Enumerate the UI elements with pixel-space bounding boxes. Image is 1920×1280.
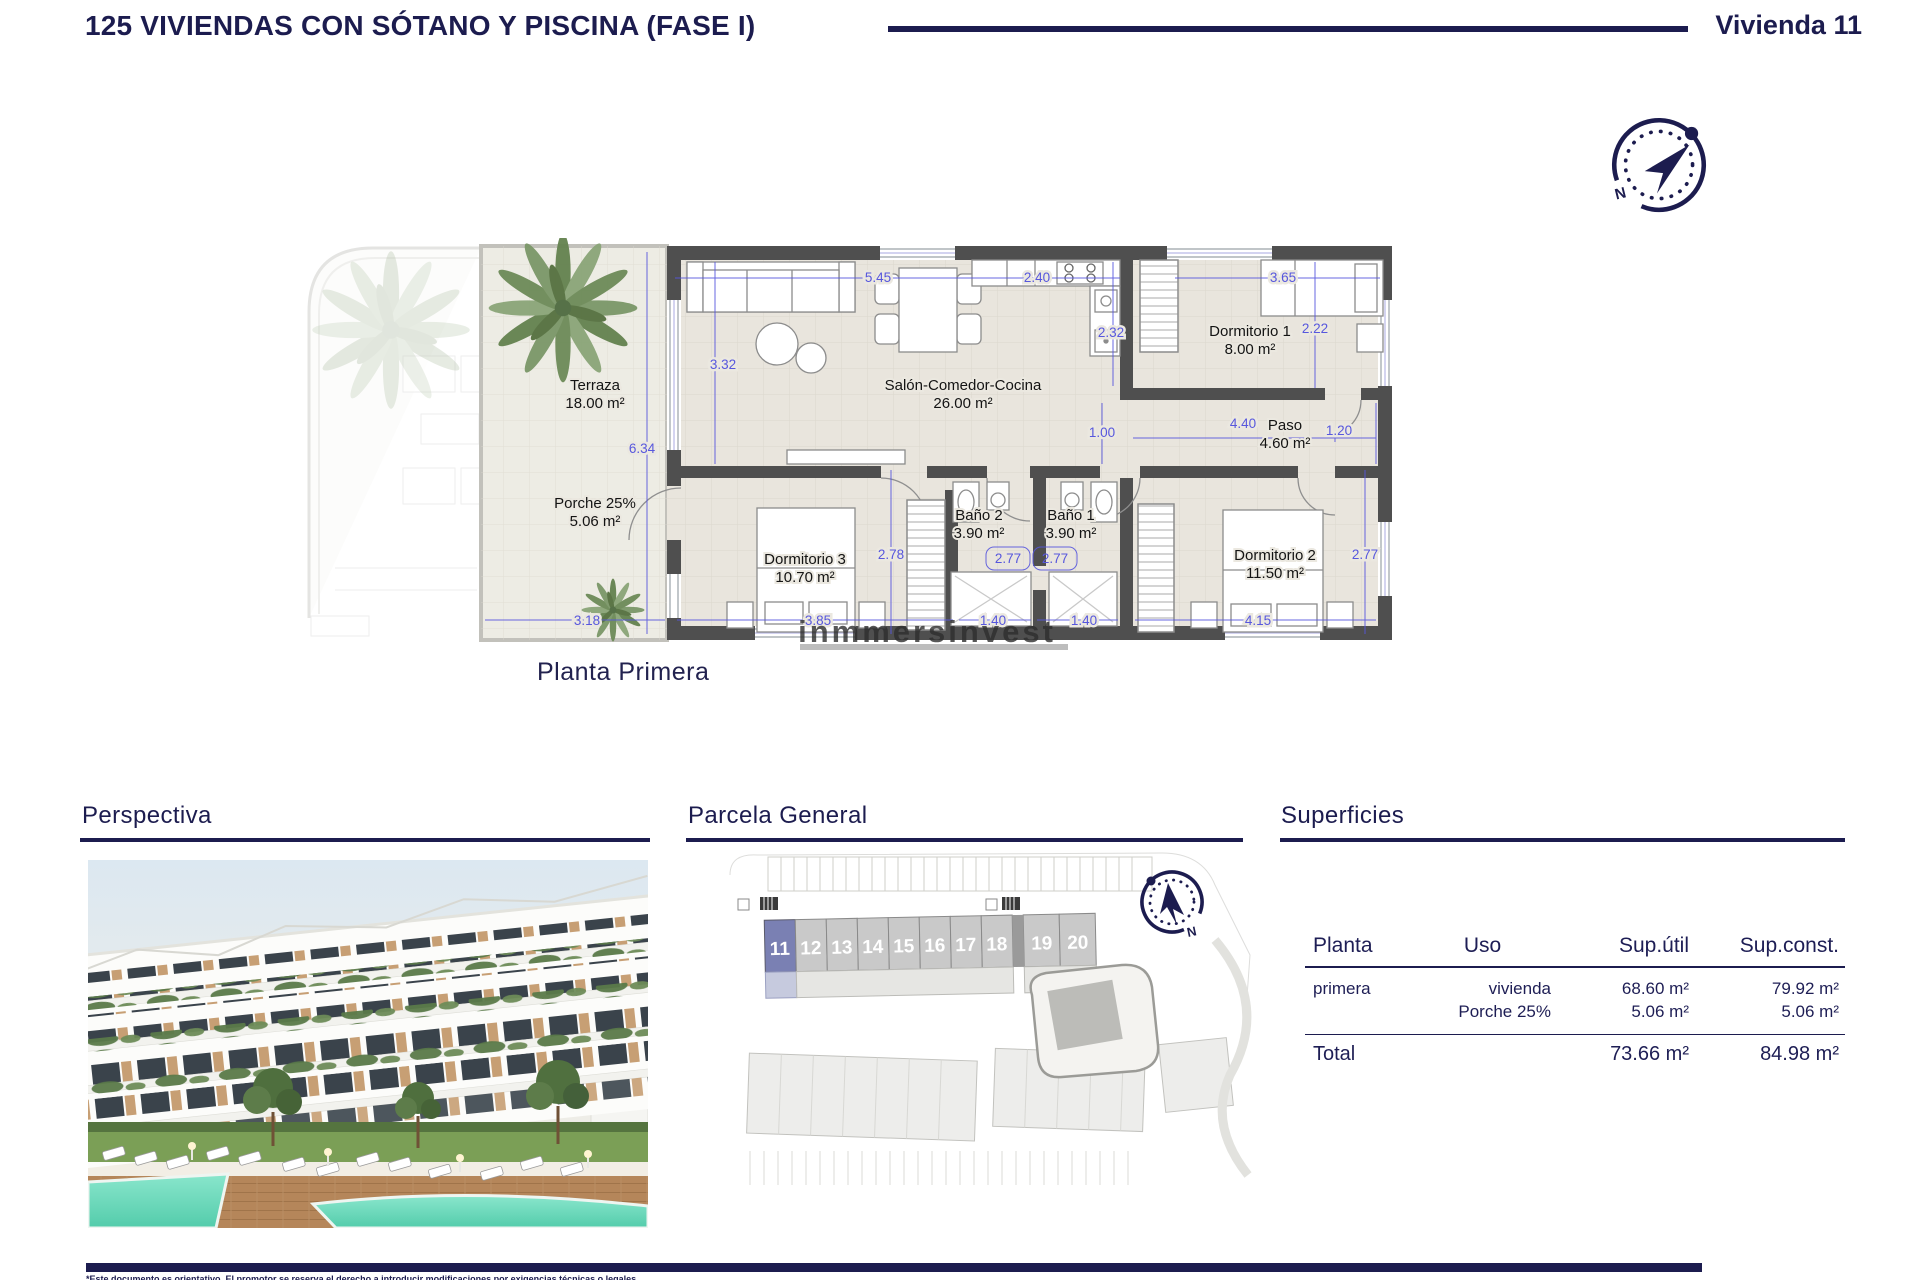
compass-dot bbox=[1685, 127, 1698, 140]
room-bath1-area: 3.90 m² bbox=[1046, 525, 1097, 542]
footer-disclaimer: *Este documento es orientativo. El promo… bbox=[86, 1274, 639, 1280]
watermark: inmmersinvest bbox=[798, 614, 1068, 650]
dim-terraza-height: 6.34 bbox=[629, 441, 656, 456]
unit-20-number: 20 bbox=[1067, 932, 1089, 953]
stair-gap bbox=[1012, 915, 1024, 967]
dim-bath1-width: 1.40 bbox=[1071, 613, 1097, 628]
title-divider bbox=[888, 26, 1688, 32]
col-header-planta: Planta bbox=[1305, 934, 1400, 958]
brochure-page: 125 VIVIENDAS CON SÓTANO Y PISCINA (FASE… bbox=[0, 0, 1920, 1280]
sofa bbox=[687, 262, 855, 312]
cell-sup-const: 79.92 m² bbox=[1695, 978, 1845, 1001]
room-dorm1-area: 8.00 m² bbox=[1225, 341, 1276, 358]
dim-bath1-tag: 2.77 bbox=[1042, 551, 1068, 566]
site-compass-arrow bbox=[1160, 883, 1184, 925]
section-parcela-title: Parcela General bbox=[688, 802, 867, 830]
cell-planta: primera bbox=[1305, 978, 1400, 1001]
cell-sup-util: 5.06 m² bbox=[1565, 1001, 1695, 1024]
table-total-rule bbox=[1305, 1034, 1845, 1035]
perspective-render bbox=[88, 860, 648, 1228]
total-sup-const: 84.98 m² bbox=[1695, 1043, 1845, 1066]
stair-blocks bbox=[738, 897, 1020, 910]
col-header-sup-util: Sup.útil bbox=[1565, 934, 1695, 958]
unit-13-number: 13 bbox=[831, 937, 853, 958]
table-row: primera vivienda 68.60 m² 79.92 m² bbox=[1305, 978, 1845, 1001]
watermark-text: inmmersinvest bbox=[798, 614, 1056, 649]
compass-arrow bbox=[1645, 145, 1690, 194]
dim-dorm1-depth: 2.22 bbox=[1302, 321, 1328, 336]
unit-19-number: 19 bbox=[1031, 933, 1053, 954]
floorplan: 5.45 2.40 3.65 3.32 2.32 2.22 6.34 1.00 … bbox=[295, 238, 1405, 650]
room-terraza-name: Terraza bbox=[570, 377, 621, 394]
plan-caption: Planta Primera bbox=[537, 658, 709, 687]
unit-18-number: 18 bbox=[986, 934, 1008, 955]
table-header-rule bbox=[1305, 966, 1845, 968]
dim-hall-width: 1.00 bbox=[1089, 425, 1115, 440]
table-row: Porche 25% 5.06 m² 5.06 m² bbox=[1305, 1001, 1845, 1024]
unit-11: 11 bbox=[764, 920, 797, 999]
table-total-row: Total 73.66 m² 84.98 m² bbox=[1305, 1043, 1845, 1066]
site-compass-north-label: N bbox=[1186, 923, 1198, 940]
room-bath2-name: Baño 2 bbox=[955, 507, 1003, 524]
compass-icon: N bbox=[1600, 106, 1718, 224]
section-perspectiva-title: Perspectiva bbox=[82, 802, 212, 830]
site-compass-icon: N bbox=[1133, 863, 1212, 942]
neighbour-unit-outline bbox=[309, 248, 503, 636]
page-title: 125 VIVIENDAS CON SÓTANO Y PISCINA (FASE… bbox=[85, 10, 755, 42]
dim-salon-depth: 3.32 bbox=[710, 357, 736, 372]
total-sup-util: 73.66 m² bbox=[1565, 1043, 1695, 1066]
room-bath2-area: 3.90 m² bbox=[954, 525, 1005, 542]
dim-bath2-tag: 2.77 bbox=[995, 551, 1021, 566]
cell-uso: Porche 25% bbox=[1400, 1001, 1565, 1024]
unit-14-number: 14 bbox=[862, 937, 884, 958]
room-dorm2-area: 11.50 m² bbox=[1246, 565, 1304, 582]
dim-paso-end: 1.20 bbox=[1326, 423, 1352, 438]
room-dorm3-name: Dormitorio 3 bbox=[764, 551, 846, 568]
room-paso-area: 4.60 m² bbox=[1260, 435, 1311, 452]
site-plan: 11 12 13 14 15 16 17 18 bbox=[710, 845, 1270, 1245]
room-dorm3-area: 10.70 m² bbox=[775, 569, 834, 586]
cell-uso: vivienda bbox=[1400, 978, 1565, 1001]
dim-terraza-width: 3.18 bbox=[574, 613, 600, 628]
room-porche-name: Porche 25% bbox=[554, 495, 636, 512]
dim-kitchen-depth: 2.32 bbox=[1098, 325, 1124, 340]
col-header-uso: Uso bbox=[1400, 934, 1565, 958]
room-porche-area: 5.06 m² bbox=[570, 513, 621, 530]
pool-right bbox=[313, 1195, 648, 1228]
unit-number-label: Vivienda 11 bbox=[1715, 10, 1862, 41]
compass-north-label: N bbox=[1613, 184, 1628, 203]
section-parcela-rule bbox=[686, 838, 1243, 842]
cell-sup-util: 68.60 m² bbox=[1565, 978, 1695, 1001]
room-salon-area: 26.00 m² bbox=[933, 395, 992, 412]
room-bath1-name: Baño 1 bbox=[1047, 507, 1095, 524]
col-header-sup-const: Sup.const. bbox=[1695, 934, 1845, 958]
pool-area bbox=[1031, 965, 1159, 1077]
room-salon-name: Salón-Comedor-Cocina bbox=[885, 377, 1042, 394]
room-paso-name: Paso bbox=[1268, 417, 1302, 434]
unit-12-number: 12 bbox=[800, 938, 822, 959]
room-dorm2-name: Dormitorio 2 bbox=[1234, 547, 1316, 564]
section-superficies-rule bbox=[1280, 838, 1845, 842]
unit-15-number: 15 bbox=[893, 936, 915, 957]
dim-dorm1-width: 3.65 bbox=[1270, 270, 1296, 285]
superficies-table: Planta Uso Sup.útil Sup.const. primera v… bbox=[1305, 934, 1845, 1066]
section-superficies-title: Superficies bbox=[1281, 802, 1404, 830]
room-dorm1-name: Dormitorio 1 bbox=[1209, 323, 1291, 340]
superficies-header-row: Planta Uso Sup.útil Sup.const. bbox=[1305, 934, 1845, 966]
footer-bar bbox=[86, 1263, 1702, 1272]
dim-salon-width: 5.45 bbox=[865, 270, 891, 285]
unit-11-number: 11 bbox=[770, 939, 791, 960]
cell-sup-const: 5.06 m² bbox=[1695, 1001, 1845, 1024]
pool bbox=[1047, 980, 1122, 1051]
dim-paso-width: 4.40 bbox=[1230, 416, 1256, 431]
dim-kitchen-width: 2.40 bbox=[1024, 270, 1050, 285]
room-terraza-area: 18.00 m² bbox=[565, 395, 624, 412]
section-perspectiva-rule bbox=[80, 838, 650, 842]
unit-17-number: 17 bbox=[955, 935, 977, 956]
dim-dorm2-depth: 2.77 bbox=[1352, 547, 1378, 562]
sideboard bbox=[787, 450, 905, 464]
pool-left bbox=[88, 1174, 228, 1228]
dim-dorm3-depth: 2.78 bbox=[878, 547, 904, 562]
dim-dorm2-width: 4.15 bbox=[1245, 613, 1271, 628]
unit-16-number: 16 bbox=[924, 935, 946, 956]
total-label: Total bbox=[1305, 1043, 1400, 1066]
